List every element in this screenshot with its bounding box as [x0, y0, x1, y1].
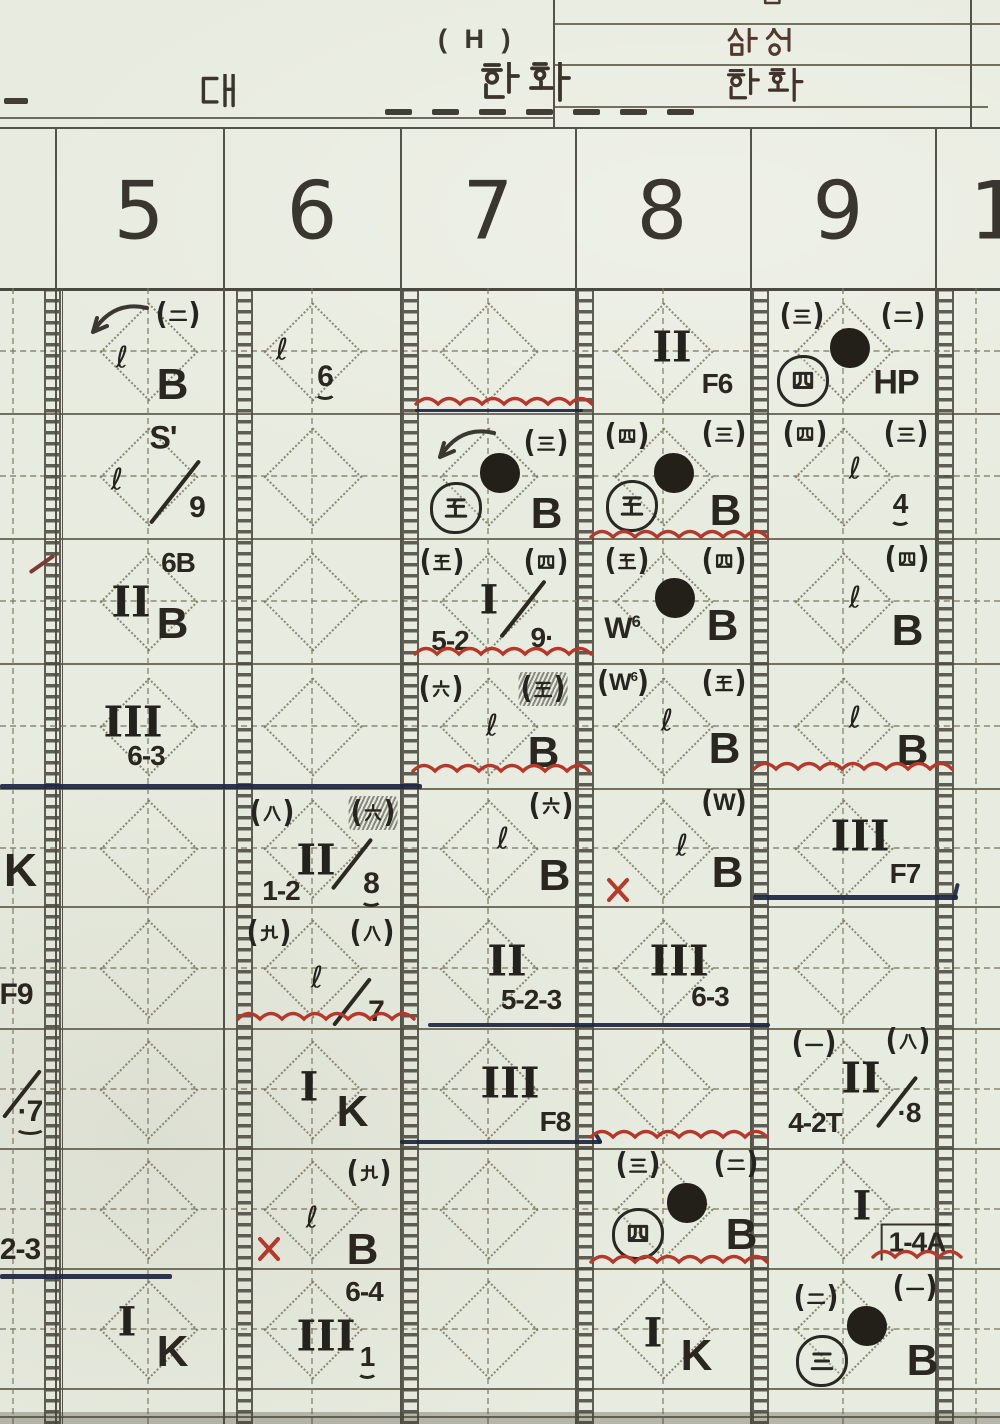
grid-vline-double — [62, 288, 63, 1424]
notation-ℓ: ℓ — [111, 463, 123, 498]
paren-kanji-五: () — [521, 674, 566, 704]
notation-B: B — [707, 601, 738, 651]
paren-kanji-六: () — [351, 798, 396, 828]
circled-kanji-五 — [430, 482, 482, 534]
paren-kanji-二: () — [714, 1149, 759, 1179]
notation-9: 9 — [189, 491, 205, 525]
header-bottom-rule — [0, 127, 1000, 129]
notation-II: II — [841, 1054, 880, 1103]
paren-kanji-三: () — [780, 301, 825, 331]
ladder-strip — [236, 288, 253, 1424]
hand-dash — [479, 109, 506, 115]
paren-kanji-一: () — [792, 1029, 837, 1059]
scorebox-partial-text — [758, 0, 787, 16]
red-wavy-line — [590, 1250, 768, 1268]
notation-HP: HP — [873, 364, 918, 403]
vs-label — [198, 74, 238, 110]
base-diamond — [440, 1281, 539, 1380]
notation-ℓ: ℓ — [849, 452, 861, 487]
inning-number: 5 — [114, 165, 165, 258]
notation-ℓ: ℓ — [306, 1201, 318, 1236]
scorecard-sheet: ( H ) 567891KF9·72-3()ℓBS'ℓ96BIIBIII6-3I… — [0, 0, 1000, 1424]
run-scored-dot — [654, 453, 694, 493]
grid-hline — [0, 663, 1000, 665]
hand-arrow — [83, 300, 153, 344]
red-wavy-line — [415, 392, 587, 410]
notation-B: B — [712, 848, 743, 898]
run-scored-dot — [655, 578, 695, 618]
notation-B: B — [157, 360, 188, 410]
notation-III: III — [650, 937, 709, 986]
base-diamond — [795, 553, 894, 652]
ladder-strip — [402, 288, 419, 1424]
scorebox-team-hanwha — [726, 68, 805, 102]
paren-kanji-五: () — [702, 668, 747, 698]
hand-dash — [573, 109, 600, 115]
scorebox-rule — [553, 23, 1000, 25]
notation-8: 8 — [363, 867, 379, 901]
notation-B: B — [539, 851, 570, 901]
paren-kanji-九: () — [347, 1158, 392, 1188]
cell-center-dashed-vline — [975, 288, 977, 1424]
notation-I: I — [480, 577, 499, 624]
notation-·8: ·8 — [898, 1097, 921, 1129]
base-diamond — [440, 1161, 539, 1260]
paren-kanji-四: () — [524, 547, 569, 577]
navy-hand-line — [0, 1274, 172, 1279]
hand-dash — [620, 109, 647, 115]
grid-top-rule — [0, 288, 1000, 291]
navy-hand-line — [428, 1023, 770, 1027]
paren-kanji-五: () — [605, 546, 650, 576]
base-diamond — [100, 1161, 199, 1260]
red-wavy-line — [414, 642, 584, 660]
notation-S': S' — [150, 420, 177, 457]
paren-kanji-三: () — [616, 1150, 661, 1180]
paren-kanji-五: () — [420, 547, 465, 577]
paren-kanji-九: () — [247, 918, 292, 948]
notation-6-3: 6-3 — [691, 981, 728, 1013]
paren-kanji-六: () — [529, 791, 574, 821]
base-diamond — [795, 920, 894, 1019]
paren-kanji-四: () — [702, 546, 747, 576]
circled-kanji-三 — [796, 1335, 848, 1387]
notation-B: B — [347, 1225, 378, 1275]
notation-·7: ·7 — [18, 1095, 43, 1129]
scorebox-vline — [970, 0, 972, 127]
grid-hline — [0, 413, 1000, 415]
notation-II: II — [487, 937, 526, 986]
notation-B: B — [892, 606, 923, 656]
grid-hline — [0, 1416, 1000, 1418]
notation-5-2-3: 5-2-3 — [501, 984, 561, 1016]
paren-kanji-W: (W6) — [597, 668, 649, 698]
paren-kanji-六: () — [419, 674, 464, 704]
hand-dash — [4, 98, 28, 104]
notation-F6: F6 — [702, 368, 733, 400]
notation-K: K — [337, 1087, 368, 1137]
red-wavy-line — [872, 1245, 964, 1263]
notation-I: I — [118, 1299, 137, 1346]
notation-ℓ: ℓ — [486, 709, 498, 744]
notation-I: I — [644, 1310, 663, 1357]
notation-6B: 6B — [161, 547, 195, 579]
hand-dash — [385, 109, 412, 115]
grid-hline — [0, 1028, 1000, 1030]
notation-F8: F8 — [540, 1106, 571, 1138]
red-wavy-line — [753, 757, 945, 775]
notation-ℓ: ℓ — [311, 961, 323, 996]
grid-hline — [0, 538, 1000, 540]
inning-number: 9 — [813, 165, 864, 258]
notation-1-2: 1-2 — [262, 875, 299, 907]
notation-B: B — [157, 599, 188, 649]
base-diamond — [440, 800, 539, 899]
scorebox-team-samsung — [726, 28, 800, 60]
notation-ℓ: ℓ — [276, 333, 288, 368]
notation-ℓ: ℓ — [497, 822, 509, 857]
notation-B: B — [531, 489, 562, 539]
base-diamond — [100, 1041, 199, 1140]
paren-kanji-三: () — [702, 419, 747, 449]
run-scored-dot — [830, 328, 870, 368]
notation-F7: F7 — [890, 858, 921, 890]
paren-kanji-八: () — [350, 918, 395, 948]
base-diamond — [440, 303, 539, 402]
inning-number: 7 — [463, 165, 514, 258]
notation-W: W6 — [604, 612, 640, 646]
notation-I: I — [300, 1064, 319, 1111]
notation-K: K — [4, 843, 36, 897]
paren-kanji-二: () — [881, 301, 926, 331]
navy-hand-line — [400, 1140, 602, 1144]
grid-hline — [0, 1268, 1000, 1270]
run-scored-dot — [480, 453, 520, 493]
header-rule — [0, 117, 553, 119]
circled-kanji-四 — [777, 355, 829, 407]
notation-II: II — [652, 323, 691, 372]
run-scored-dot — [847, 1306, 887, 1346]
notation-1: 1 — [360, 1341, 375, 1373]
inning-number-partial: 1 — [970, 165, 1000, 258]
notation-ℓ: ℓ — [849, 701, 861, 736]
grid-hline — [0, 1388, 1000, 1390]
navy-hand-line — [753, 895, 958, 900]
base-diamond — [264, 678, 363, 777]
paren-kanji-二: () — [156, 300, 201, 330]
hand-dash — [667, 109, 694, 115]
paren-kanji-二: () — [794, 1283, 839, 1313]
base-diamond — [100, 920, 199, 1019]
notation-II: II — [296, 836, 335, 885]
base-diamond — [264, 428, 363, 527]
notation-2-3: 2-3 — [0, 1233, 40, 1267]
base-diamond — [264, 553, 363, 652]
notation-III: III — [297, 1312, 356, 1361]
ladder-strip — [44, 288, 61, 1424]
red-wavy-line — [412, 759, 582, 777]
notation-6-3: 6-3 — [127, 740, 164, 772]
notation-K: K — [681, 1331, 712, 1381]
notation-ℓ: ℓ — [116, 341, 128, 376]
run-scored-dot — [667, 1183, 707, 1223]
notation-6: 6 — [317, 360, 333, 394]
paren-kanji-八: () — [886, 1026, 931, 1056]
inning-number: 8 — [637, 165, 688, 258]
notation-ℓ: ℓ — [676, 829, 688, 864]
grid-hline — [0, 906, 1000, 908]
notation-K: K — [157, 1327, 188, 1377]
paren-kanji-三: () — [524, 428, 569, 458]
paren-kanji-三: () — [884, 419, 929, 449]
notation-ℓ: ℓ — [849, 581, 861, 616]
notation-II: II — [111, 578, 150, 627]
paren-kanji-四: () — [885, 544, 930, 574]
notation-III: III — [831, 812, 890, 861]
notation-I: I — [853, 1183, 872, 1230]
notation-4-2T: 4-2T — [788, 1107, 842, 1139]
photo-edge-shadow — [0, 1412, 1000, 1424]
notation-III: III — [481, 1059, 540, 1108]
grid-hline — [0, 1148, 1000, 1150]
paren-kanji-四: () — [783, 419, 828, 449]
notation-6-4: 6-4 — [345, 1276, 382, 1308]
notation-4: 4 — [893, 488, 908, 520]
grid-vline — [223, 127, 225, 1424]
base-diamond — [100, 800, 199, 899]
paren-kanji-八: () — [250, 798, 295, 828]
navy-hand-line — [0, 784, 422, 789]
red-wavy-line — [590, 525, 758, 543]
red-wavy-line — [590, 1125, 768, 1143]
team-name-left — [480, 62, 572, 102]
scorebox-rule — [553, 106, 988, 108]
notation-B: B — [709, 724, 740, 774]
red-x-mark — [256, 1235, 282, 1263]
paren-kanji-W: (W) — [701, 788, 746, 818]
hand-dash — [526, 109, 553, 115]
red-x-mark — [605, 876, 631, 904]
notation-F9: F9 — [0, 978, 33, 1012]
paren-kanji-一: () — [893, 1273, 938, 1303]
scorebox-rule — [553, 64, 1000, 66]
notation-ℓ: ℓ — [661, 704, 673, 739]
game-note: ( H ) — [438, 24, 515, 55]
red-wavy-line — [237, 1007, 419, 1025]
paren-kanji-四: () — [605, 421, 650, 451]
hand-dash — [432, 109, 459, 115]
notation-B: B — [907, 1336, 938, 1386]
inning-number: 6 — [287, 165, 338, 258]
